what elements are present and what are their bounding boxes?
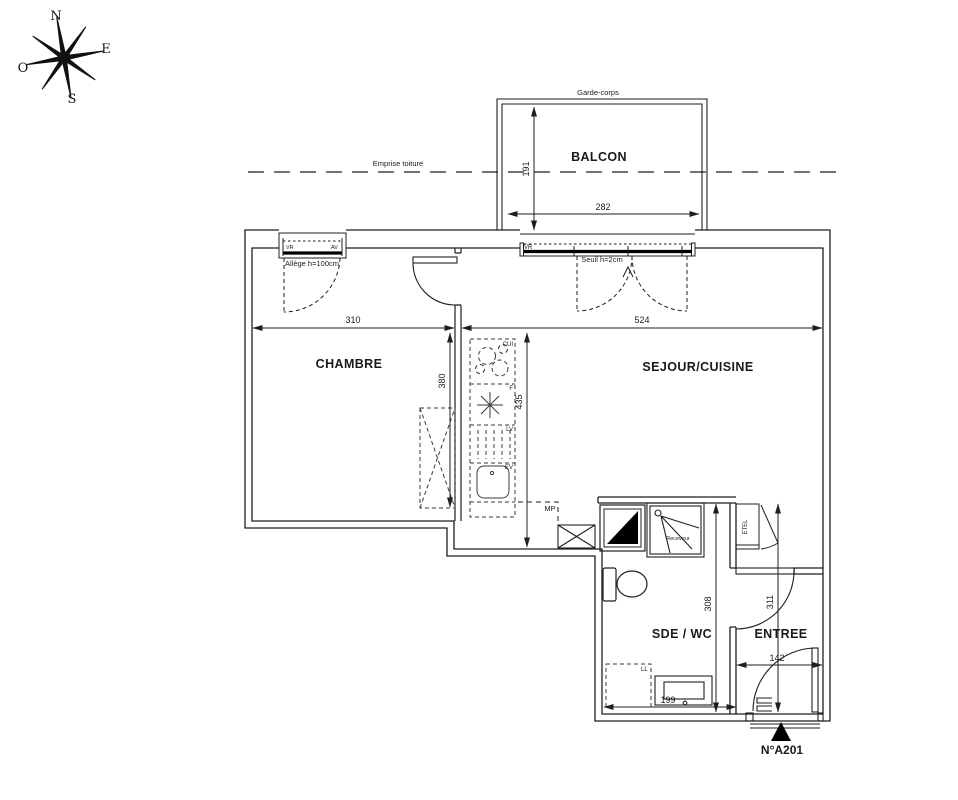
etel-label: ETEL [743, 519, 749, 535]
roof-overhang-line: Emprise toiture [248, 159, 845, 172]
duct-triangle-icon [607, 511, 638, 544]
dim-vanity-width-label: 199 [660, 695, 675, 705]
compass-south-label: S [68, 92, 77, 107]
bedroom-living-wall [455, 248, 461, 521]
room-label-bathroom: SDE / WC [652, 627, 712, 641]
toilet-bowl [617, 571, 647, 597]
room-label-living: SEJOUR/CUISINE [642, 360, 753, 374]
dim-bedroom-depth-label: 380 [437, 373, 447, 388]
vanity-drain [683, 701, 687, 705]
dim-bathroom-depth: 308 [703, 504, 716, 712]
dishwasher-hatch [478, 430, 510, 459]
floor-plan-svg: N E S O Emprise toiture Garde-corps BALC… [0, 0, 958, 800]
dim-bathroom-depth-label: 308 [703, 596, 713, 611]
shower: Receveur [647, 503, 704, 557]
compass-rose: N E S O [18, 9, 111, 107]
fridge-snowflake-icon [477, 392, 503, 418]
burner-large-2 [492, 360, 508, 376]
dim-bedroom-width: 310 [253, 315, 454, 328]
kitchen-unit: CUI F LV EV [470, 339, 515, 517]
balcony-door: VR Seuil h=2cm [520, 234, 695, 311]
entry-door-leaf [812, 648, 818, 712]
dim-entry-depth: 311 [765, 504, 778, 712]
dishwasher-label: LV [506, 427, 513, 433]
bedroom-window: VR AV Allège h=100cm [279, 233, 346, 312]
dim-balcony-depth-label: 191 [521, 161, 531, 176]
floor-plan-page: N E S O Emprise toiture Garde-corps BALC… [0, 0, 958, 800]
dim-balcony-width-label: 282 [595, 202, 610, 212]
bedroom-window-right-label: AV [331, 245, 338, 251]
unit-entry-marker: N°A201 [761, 722, 803, 757]
washer-label: LL [641, 667, 648, 673]
balcony-door-shutter-label: VR [524, 245, 533, 251]
dim-living-depth: 435 [514, 333, 527, 547]
washing-machine: LL [606, 664, 651, 707]
room-label-bedroom: CHAMBRE [316, 357, 383, 371]
sink-label: EV [505, 465, 513, 471]
technical-duct [600, 505, 645, 551]
dim-entry-door-width: 142 [737, 653, 822, 665]
etel-door-arc [761, 543, 778, 549]
burner-large-1 [479, 348, 496, 365]
bedroom-window-shutter-label: VR [286, 245, 294, 251]
dim-living-width: 524 [462, 315, 822, 328]
unit-number-label: N°A201 [761, 743, 803, 757]
etel-door-leaf [761, 505, 778, 543]
entry-door-stop-1 [757, 698, 772, 703]
mp-line: MP [518, 502, 558, 547]
dim-entry-depth-label: 311 [765, 595, 775, 609]
dim-bedroom-width-label: 310 [345, 315, 360, 325]
roof-overhang-label: Emprise toiture [373, 159, 423, 168]
shower-drain [655, 510, 661, 516]
entry-door-stop-2 [757, 706, 772, 711]
window-sill-label: Allège h=100cm [285, 259, 339, 268]
fridge-label: F [509, 386, 513, 392]
dim-entry-door-width-label: 142 [769, 653, 784, 663]
door-sill-label: Seuil h=2cm [581, 255, 622, 264]
dim-balcony-depth: 191 [521, 107, 534, 230]
entry-triangle-icon [771, 722, 791, 741]
compass-west-label: O [18, 61, 29, 76]
toilet-tank [603, 568, 616, 601]
guardrail-label: Garde-corps [577, 88, 619, 97]
cooktop-label: CUI [503, 342, 514, 348]
balcony-door-swing-right [632, 256, 687, 311]
room-label-balcony: BALCON [571, 150, 627, 164]
compass-north-label: N [50, 9, 61, 24]
shower-tray-label: Receveur [666, 536, 690, 542]
toilet [603, 568, 647, 601]
burner-small-2 [476, 365, 485, 374]
etel-cabinet: ETEL [736, 504, 778, 549]
x-duct [558, 525, 595, 548]
exterior-walls [245, 230, 830, 721]
bedroom-door [413, 257, 457, 305]
room-label-entry: ENTREE [754, 627, 807, 641]
mp-label: MP [544, 504, 555, 513]
dim-living-width-label: 524 [634, 315, 649, 325]
dim-bedroom-depth: 380 [437, 333, 450, 507]
dim-balcony-width: 282 [508, 202, 699, 214]
dim-living-depth-label: 435 [514, 394, 524, 409]
compass-east-label: E [101, 42, 111, 57]
sink-drain [490, 471, 493, 474]
balcony-door-swing-left [577, 256, 632, 311]
bedroom-door-swing-arc [413, 263, 455, 305]
